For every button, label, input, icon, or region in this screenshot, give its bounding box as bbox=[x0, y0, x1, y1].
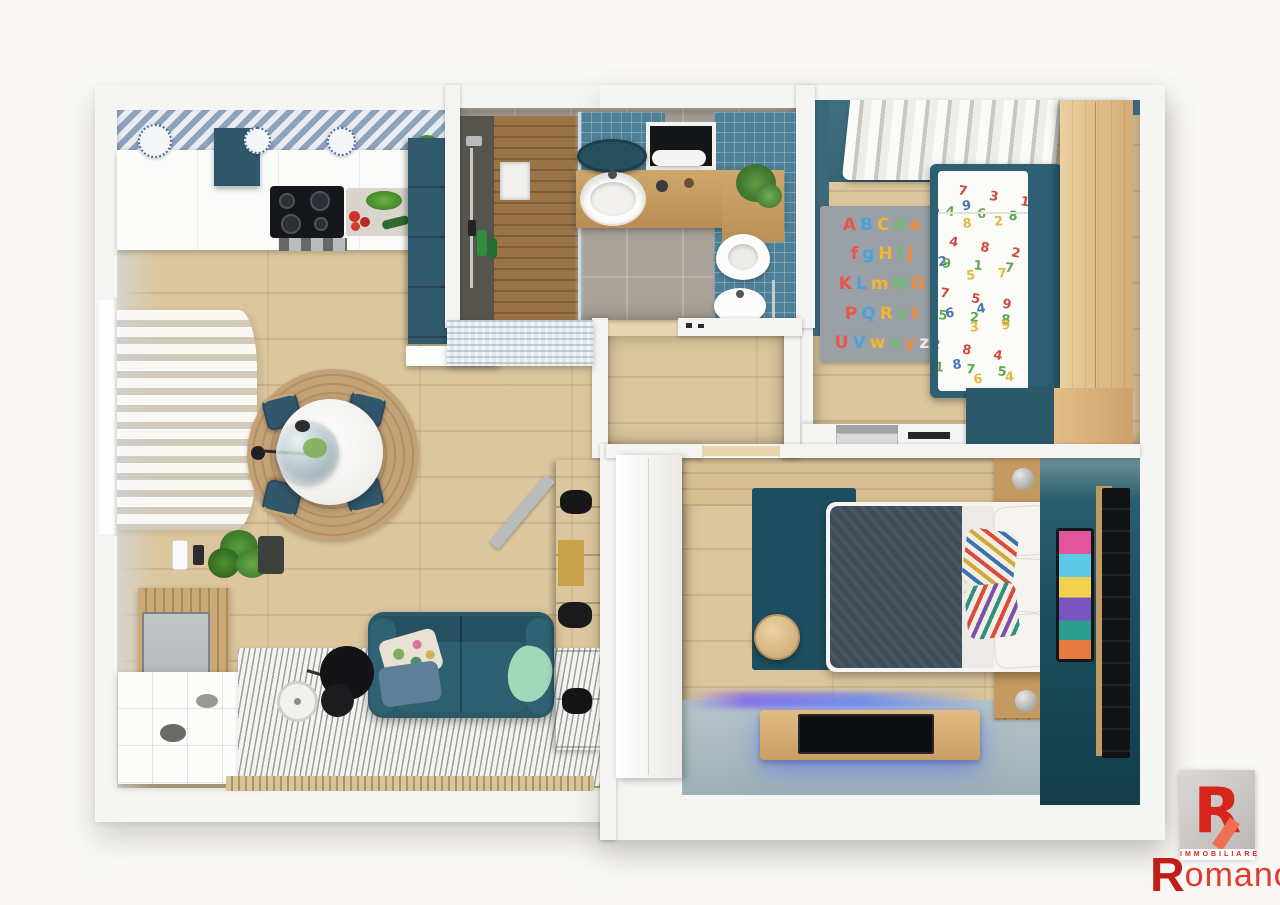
logo-name-initial: R bbox=[1150, 854, 1185, 898]
shampoo-bottle bbox=[477, 230, 487, 256]
alphabet-rug-row: UVwxyz bbox=[820, 329, 944, 357]
console-stored-item bbox=[160, 724, 186, 742]
wall-hallway-kids bbox=[784, 318, 800, 458]
cooktop-burner bbox=[314, 217, 328, 231]
headboard-wall-paneling bbox=[682, 458, 1040, 506]
toilet-seat bbox=[728, 244, 758, 270]
wall-bathroom-kids bbox=[796, 85, 815, 328]
master-bed bbox=[826, 502, 1052, 672]
alphabet-rug-row: KLmNO bbox=[820, 270, 944, 298]
laptop-screen bbox=[836, 425, 898, 433]
colorful-artwork bbox=[1056, 528, 1094, 662]
soap-dish bbox=[656, 180, 668, 192]
wavy-tile-wall-face bbox=[447, 320, 593, 366]
black-vertical-radiator bbox=[1102, 488, 1130, 758]
cooktop-burner bbox=[281, 214, 301, 234]
bedroom-door-threshold bbox=[702, 446, 780, 456]
side-table-center bbox=[294, 698, 301, 705]
white-wardrobe-divider bbox=[616, 455, 682, 778]
shampoo-bottle bbox=[468, 220, 476, 236]
kitchen-tall-teal-unit bbox=[408, 138, 448, 344]
window-sill bbox=[99, 298, 117, 536]
patterned-pillow bbox=[963, 581, 1020, 640]
bathroom-plant bbox=[756, 184, 782, 208]
logo-name: R omano bbox=[1150, 854, 1280, 898]
wall-living-bedroom bbox=[600, 444, 616, 840]
vanity-accessory bbox=[684, 178, 694, 188]
pendant-ceiling-mount bbox=[251, 446, 265, 460]
shower-niche bbox=[500, 162, 530, 200]
wall-bathroom-south bbox=[678, 318, 802, 336]
cooktop-burner bbox=[279, 193, 295, 209]
decorative-plate bbox=[138, 124, 172, 158]
shelf-item bbox=[560, 490, 592, 514]
round-wood-pouf bbox=[754, 614, 800, 660]
patterned-pillow bbox=[960, 527, 1019, 590]
sphere-wall-lamp bbox=[1012, 468, 1034, 490]
shower-drain-strip bbox=[458, 116, 494, 320]
pendant-lamp-cap bbox=[295, 420, 310, 432]
shelf-item bbox=[558, 602, 592, 628]
kids-teal-cabinet bbox=[966, 388, 1054, 450]
light-switch bbox=[193, 545, 204, 565]
kids-pillow-edge bbox=[938, 212, 1028, 214]
bedroom-tv bbox=[798, 714, 934, 754]
alphabet-rug: ABCde fgHIJ KLmNO PQRst UVwxyz bbox=[820, 206, 944, 362]
under-bed-led-glow bbox=[686, 692, 984, 708]
shower-wood-deck bbox=[494, 116, 578, 320]
sheer-curtain bbox=[117, 310, 257, 530]
wall-kitchen-bathroom bbox=[445, 85, 460, 328]
shelf-box bbox=[558, 540, 584, 586]
rolled-towel bbox=[652, 150, 706, 166]
lettuce bbox=[366, 191, 402, 210]
door-hinge bbox=[686, 323, 692, 328]
alphabet-rug-row: fgHIJ bbox=[820, 240, 944, 268]
teal-sofa bbox=[368, 612, 554, 718]
kids-wood-cabinet bbox=[1054, 388, 1133, 448]
washbasin-bowl bbox=[590, 182, 636, 216]
kitchen-cooktop bbox=[270, 186, 344, 238]
console-stored-item bbox=[196, 694, 218, 708]
hallway-floor bbox=[606, 332, 784, 444]
shelf-item bbox=[562, 688, 592, 714]
tomato bbox=[349, 211, 360, 222]
shower-rail bbox=[470, 148, 473, 288]
desk-tablet bbox=[908, 432, 950, 439]
blue-pillow bbox=[378, 660, 443, 708]
wood-slat-mat bbox=[226, 776, 594, 791]
floor-lamp-shade bbox=[321, 684, 354, 717]
wall-living-hallway bbox=[592, 318, 608, 458]
tomato bbox=[351, 222, 360, 231]
tomato bbox=[360, 217, 370, 227]
decorative-plate bbox=[327, 127, 356, 156]
pendant-lamp-reflection bbox=[303, 438, 327, 458]
wall-kids-bedroom bbox=[780, 444, 1140, 458]
alphabet-rug-row: ABCde bbox=[820, 211, 944, 239]
door-hinge bbox=[698, 324, 704, 328]
kitchen-hood-vent bbox=[279, 238, 347, 251]
kids-numbers-duvet: 7 3 1 4 8 2 7 5 9 2 8 4 5 9 2 6 4 8 3 5 … bbox=[938, 171, 1028, 391]
cooktop-burner bbox=[310, 191, 330, 211]
wardrobe-divider-seam bbox=[648, 458, 649, 775]
bidet-faucet bbox=[736, 290, 744, 298]
alphabet-rug-row: PQRst bbox=[820, 300, 944, 328]
logo-name-rest: omano bbox=[1185, 854, 1280, 897]
shampoo-bottle bbox=[488, 238, 497, 258]
master-duvet bbox=[830, 506, 968, 668]
floor-plan-render: ABCde fgHIJ KLmNO PQRst UVwxyz 7 3 1 4 8… bbox=[0, 0, 1280, 905]
thermostat bbox=[172, 540, 188, 570]
oval-mirror bbox=[577, 139, 647, 173]
bathroom-door-threshold bbox=[608, 320, 678, 336]
plant-pot bbox=[258, 536, 284, 574]
logo-mark: R bbox=[1180, 770, 1255, 858]
shower-head bbox=[466, 136, 482, 146]
logo-mark-letter: R bbox=[1194, 780, 1242, 842]
wardrobe-door-seam bbox=[1095, 102, 1096, 388]
sphere-wall-lamp bbox=[1015, 690, 1037, 712]
kids-wood-wardrobe bbox=[1060, 100, 1133, 390]
decorative-plate bbox=[244, 127, 271, 154]
basin-faucet bbox=[608, 170, 617, 179]
